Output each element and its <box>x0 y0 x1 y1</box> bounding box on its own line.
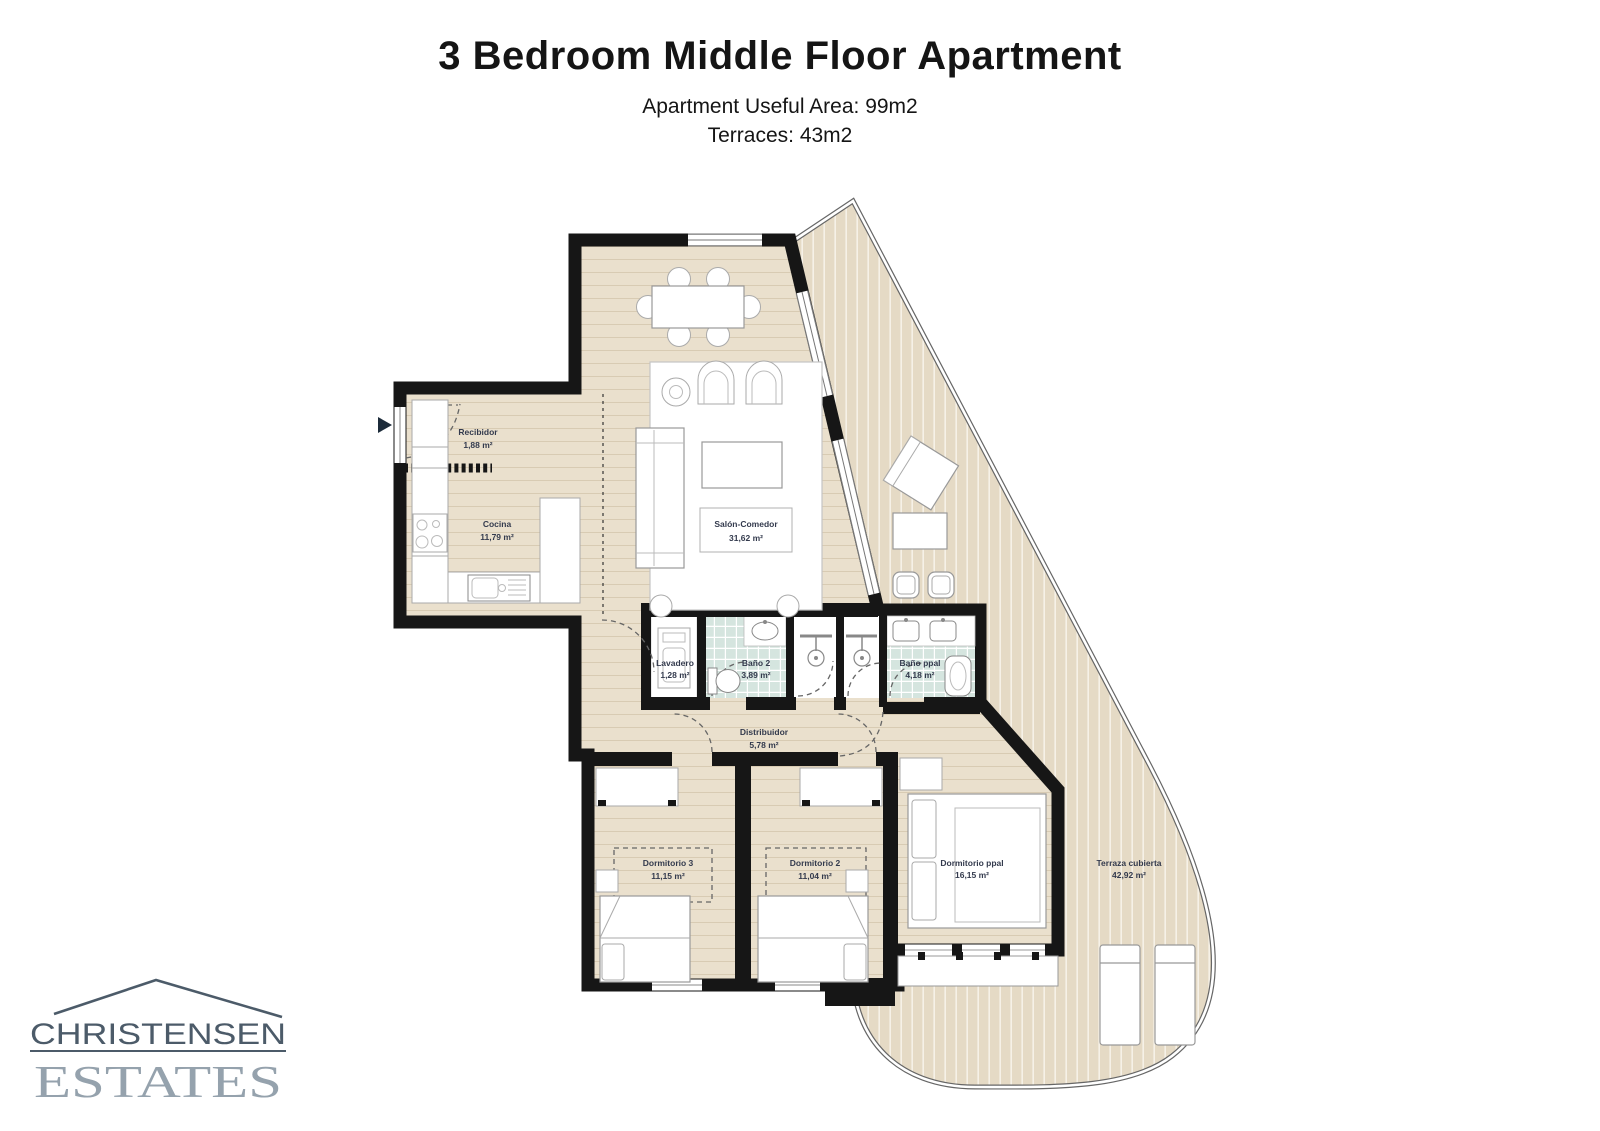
floor-lamp-2 <box>777 595 799 617</box>
label-terraza-name: Terraza cubierta <box>1096 858 1161 868</box>
logo-type-text: ESTATES <box>34 1056 282 1107</box>
terrace-stool-1 <box>893 572 919 598</box>
label-dormitorio-ppal-area: 16,15 m² <box>955 870 989 880</box>
logo-graphic: CHRISTENSEN ESTATES <box>24 966 324 1116</box>
bed-bedroom3 <box>600 896 690 982</box>
label-bano2-area: 3,89 m² <box>741 670 770 680</box>
label-lavadero-area: 1,28 m² <box>660 670 689 680</box>
bath2-toilet <box>708 668 740 694</box>
label-distribuidor-area: 5,78 m² <box>749 740 778 750</box>
coffee-table <box>702 442 782 488</box>
sun-lounger-2 <box>1155 945 1195 1045</box>
closet-master <box>900 758 942 790</box>
entrance-arrow-icon <box>378 417 392 433</box>
floor-plan: Recibidor 1,88 m² Cocina 11,79 m² Salón-… <box>0 0 1600 1131</box>
terrace-table <box>893 513 947 549</box>
cooktop <box>413 514 447 552</box>
sun-lounger-1 <box>1100 945 1140 1045</box>
master-window-band <box>905 944 1045 956</box>
logo-name-text: CHRISTENSEN <box>30 1018 286 1051</box>
label-salon-name: Salón-Comedor <box>714 519 778 529</box>
sofa <box>636 428 684 568</box>
label-dormitorio2-name: Dormitorio 2 <box>790 858 841 868</box>
nightstand-bedroom3 <box>596 870 618 892</box>
kitchen-island <box>540 498 580 603</box>
label-cocina-name: Cocina <box>483 519 512 529</box>
bed-bedroom2 <box>758 896 868 982</box>
label-dormitorio3-name: Dormitorio 3 <box>643 858 694 868</box>
label-cocina-area: 11,79 m² <box>480 532 514 542</box>
label-lavadero-name: Lavadero <box>656 658 694 668</box>
label-dormitorio-ppal-name: Dormitorio ppal <box>940 858 1003 868</box>
label-recibidor-name: Recibidor <box>458 427 498 437</box>
label-dormitorio2-area: 11,04 m² <box>798 871 832 881</box>
company-logo: CHRISTENSEN ESTATES <box>24 966 324 1121</box>
bathtub <box>945 656 971 696</box>
kitchen-counter-left <box>412 400 448 603</box>
label-terraza-area: 42,92 m² <box>1112 870 1146 880</box>
label-bano-ppal-name: Baño ppal <box>899 658 940 668</box>
terrace-planter-band <box>898 952 1058 986</box>
roof-icon <box>54 980 282 1017</box>
label-distribuidor-name: Distribuidor <box>740 727 789 737</box>
armchair-2 <box>746 361 782 404</box>
kitchen-sink <box>468 575 530 601</box>
armchair-1 <box>698 361 734 404</box>
label-dormitorio3-area: 11,15 m² <box>651 871 685 881</box>
closet-bedroom2 <box>800 768 882 806</box>
nightstand-bedroom2 <box>846 870 868 892</box>
label-recibidor-area: 1,88 m² <box>463 440 492 450</box>
dining-table <box>652 286 744 328</box>
terrace-stool-2 <box>928 572 954 598</box>
label-bano-ppal-area: 4,18 m² <box>905 670 934 680</box>
living-label-box <box>700 508 792 552</box>
side-table <box>662 378 690 406</box>
closet-bedroom3 <box>596 768 678 806</box>
label-bano2-name: Baño 2 <box>742 658 771 668</box>
floor-lamp-1 <box>650 595 672 617</box>
label-salon-area: 31,62 m² <box>729 533 763 543</box>
entrance-door <box>378 407 400 463</box>
